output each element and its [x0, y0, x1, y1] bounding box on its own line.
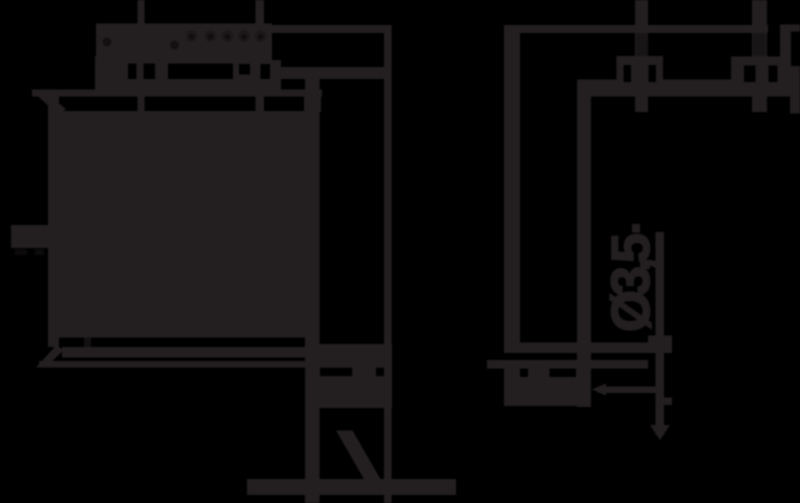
svg-text:Ø3,5: Ø3,5	[601, 234, 661, 332]
